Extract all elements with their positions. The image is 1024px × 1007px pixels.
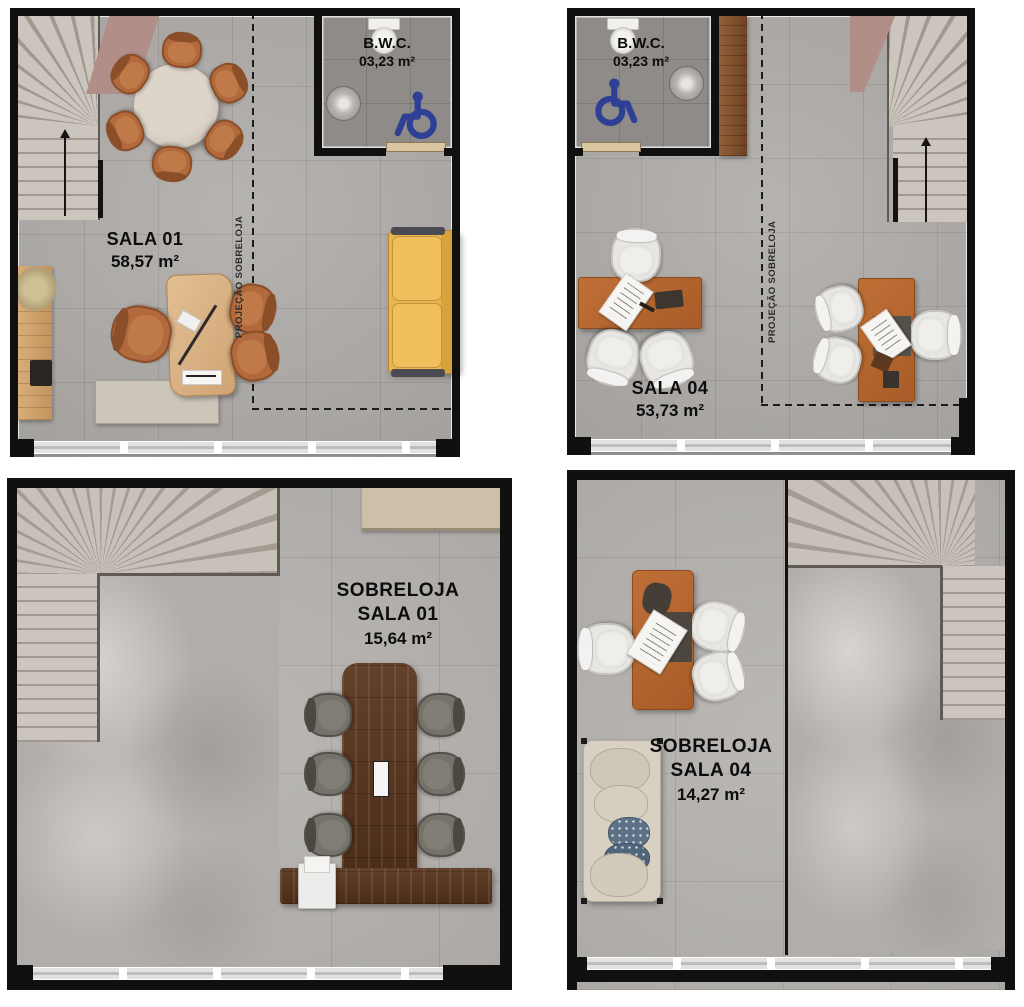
conference-chair (417, 813, 465, 857)
room-name: SALA 04 (600, 377, 740, 400)
projection-label: PROJEÇÃO SOBRELOJA (767, 173, 778, 343)
bwc-label: B.W.C. 03,23 m² (327, 34, 447, 71)
bwc-title: B.W.C. (327, 34, 447, 53)
bwc-door (386, 142, 446, 152)
wall-corner (443, 965, 512, 990)
storefront-window (33, 967, 443, 980)
wall-corner (567, 957, 587, 982)
mezzanine-guard (785, 480, 788, 955)
wall-top (10, 8, 460, 16)
storefront-window (587, 957, 991, 970)
sofa-pillow (590, 853, 648, 897)
wall-left (7, 478, 17, 990)
projection-label: PROJEÇÃO SOBRELOJA (234, 168, 245, 338)
bwc-area: 03,23 m² (579, 53, 703, 71)
wall-left (567, 8, 575, 451)
storefront-window (34, 441, 436, 454)
room-prefix: SOBRELOJA (631, 735, 791, 759)
sofa-armrest (391, 369, 445, 377)
desk-paper (182, 370, 222, 385)
bwc-wall-bottom (639, 148, 719, 156)
room-area: 53,73 m² (600, 400, 740, 422)
sink (669, 66, 704, 101)
bwc-label: B.W.C. 03,23 m² (579, 34, 703, 71)
staircase-edge (97, 573, 279, 576)
tall-cabinet (719, 16, 747, 156)
bwc-wall-bottom (314, 148, 386, 156)
wall-right (967, 8, 975, 451)
conference-chair (417, 752, 465, 796)
sofa-foot (657, 898, 663, 904)
room-label: SOBRELOJA SALA 04 14,27 m² (631, 735, 791, 805)
staircase-winder (887, 16, 967, 126)
arrow-shaft (64, 132, 66, 216)
floorplan-sheet: B.W.C. 03,23 m² PROJEÇÃO SOBRELOJA (0, 0, 1024, 1007)
wall-left (10, 8, 18, 453)
chair (161, 30, 204, 69)
mezzanine-projection-line (252, 408, 452, 410)
serving-tray (30, 360, 52, 386)
stair-direction-arrow (921, 132, 931, 222)
wall-top (7, 478, 512, 488)
room-prefix: SOBRELOJA (298, 579, 498, 603)
conference-chair (304, 752, 352, 796)
stair-direction-arrow (60, 124, 70, 216)
staircase-edge (940, 566, 943, 720)
sofa (388, 230, 460, 374)
staircase-winder (18, 16, 98, 126)
room-label: SALA 01 58,57 m² (70, 228, 220, 273)
sink (326, 86, 361, 121)
sofa-cushion (392, 236, 442, 301)
staircase-run (17, 574, 97, 742)
room-label: SALA 04 53,73 m² (600, 377, 740, 422)
bwc-wall-left (314, 8, 322, 156)
printer (298, 863, 336, 909)
room-name: SALA 01 (70, 228, 220, 251)
room-area: 14,27 m² (631, 784, 791, 806)
laptop (654, 290, 684, 310)
arrow-shaft (925, 140, 927, 222)
office-chair (610, 227, 662, 283)
mezzanine-projection-line (761, 12, 763, 404)
sofa-armrest (391, 227, 445, 235)
wall-corner (10, 439, 34, 457)
bwc-title: B.W.C. (579, 34, 703, 53)
staircase-edge (788, 565, 942, 568)
wall-right (500, 478, 512, 990)
floorplan-sala01: B.W.C. 03,23 m² PROJEÇÃO SOBRELOJA (10, 8, 460, 457)
bwc-door-jamb (444, 148, 452, 156)
sofa-cushion (392, 303, 442, 368)
staircase-edge (887, 16, 889, 222)
wall-right (1005, 470, 1015, 990)
staircase-winder (17, 488, 279, 574)
room-name: SALA 01 (298, 603, 498, 627)
mezzanine-projection-line (761, 404, 965, 406)
wall-corner (951, 437, 975, 455)
floorplan-sala04: B.W.C. 03,23 m² PROJEÇÃO SOBRELOJA (567, 8, 975, 455)
wheelchair-icon (593, 78, 639, 128)
wall-bottom (567, 968, 1015, 982)
sofa-foot (581, 898, 587, 904)
room-name: SALA 04 (631, 759, 791, 783)
wall-corner (567, 437, 591, 455)
wall-right (452, 8, 460, 453)
staircase-edge (97, 574, 100, 742)
room-area: 58,57 m² (70, 251, 220, 273)
office-chair (910, 310, 962, 360)
desk-paper-line (186, 375, 216, 377)
bwc-door (581, 142, 641, 152)
bwc-area: 03,23 m² (327, 53, 447, 71)
wall-post (98, 160, 103, 218)
wheelchair-icon (393, 91, 439, 141)
bwc-wall-right (711, 8, 719, 156)
wall-top (567, 470, 1015, 480)
cable-hatch (373, 761, 389, 797)
floorplan-sobreloja-sala04: SOBRELOJA SALA 04 14,27 m² (567, 470, 1015, 990)
wall-top (567, 8, 975, 16)
staircase-run (18, 126, 98, 220)
room-label: SOBRELOJA SALA 01 15,64 m² (298, 579, 498, 649)
office-chair (577, 623, 635, 675)
sofa-foot (581, 738, 587, 744)
storefront-window (591, 439, 951, 452)
wall-left (567, 470, 577, 990)
conference-chair (304, 813, 352, 857)
wall-post (893, 158, 898, 222)
staircase-run (942, 566, 1005, 720)
wall-corner (7, 965, 33, 990)
staircase-winder (785, 480, 975, 566)
wall-corner (436, 439, 460, 457)
conference-chair (417, 693, 465, 737)
wall-corner (991, 957, 1015, 982)
desk-drawer-unit (883, 371, 899, 388)
bwc-door-jamb (575, 148, 583, 156)
storage-cabinet (361, 488, 501, 531)
conference-chair (304, 693, 352, 737)
floorplan-sobreloja-sala01: SOBRELOJA SALA 01 15,64 m² (7, 478, 512, 990)
staircase-edge (277, 488, 280, 576)
room-area: 15,64 m² (298, 628, 498, 650)
